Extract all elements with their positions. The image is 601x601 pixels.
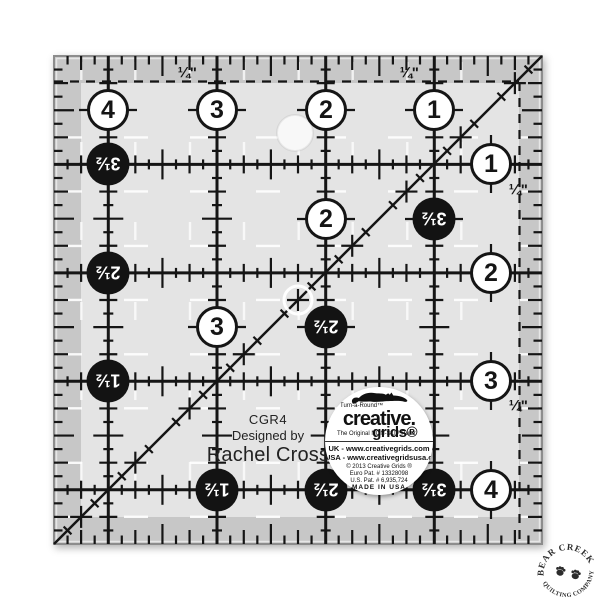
svg-text:QUILTING COMPANY: QUILTING COMPANY bbox=[540, 568, 601, 601]
bear-creek-stamp: BEAR CREEK QUILTING COMPANY bbox=[0, 0, 601, 601]
product-photo: 43211234233½2½1½1½2½3½3½2½ ¼"¼"¼"¼" CGR4… bbox=[0, 0, 601, 601]
paw-print-icon bbox=[570, 569, 582, 580]
paw-print-icon bbox=[555, 565, 567, 576]
stamp-arc-bottom-text: QUILTING COMPANY bbox=[540, 568, 601, 601]
